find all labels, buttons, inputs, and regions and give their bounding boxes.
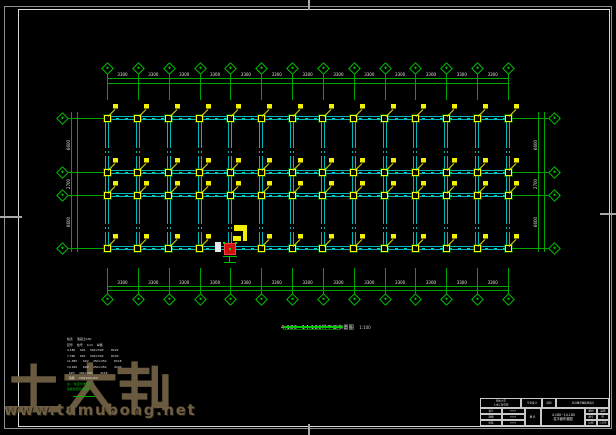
beam-dash-break bbox=[167, 222, 171, 232]
axis-bubble-left bbox=[56, 112, 69, 125]
bay-dimension: 3300 bbox=[395, 281, 405, 285]
column-tag bbox=[113, 234, 118, 239]
beam-dash-break bbox=[321, 146, 325, 156]
beam-dash-break bbox=[136, 222, 140, 232]
axis-bubble-bottom bbox=[317, 293, 330, 306]
bottom-dimension-line bbox=[107, 290, 508, 291]
axis-bubble-top bbox=[286, 62, 299, 75]
beam-dash-break bbox=[475, 222, 479, 232]
depth-dimension: 6600 bbox=[534, 140, 538, 150]
vertical-axis-line bbox=[169, 268, 170, 296]
title-block: 郑州大学土木工程学院毕业设计结构综合教学楼结构设计设计×××制图×××审核×××… bbox=[480, 398, 609, 426]
tb-project-name: 综合教学楼结构设计 bbox=[556, 398, 609, 408]
axis-bubble-right bbox=[548, 112, 561, 125]
note-row-green: 箍筋加密区详图集 bbox=[67, 387, 123, 393]
axis-bubble-bottom bbox=[348, 293, 361, 306]
top-dimension-line bbox=[107, 78, 508, 79]
beam-dash-break bbox=[228, 146, 232, 156]
column-tag bbox=[206, 234, 211, 239]
column-tag bbox=[267, 104, 272, 109]
column-tag bbox=[514, 181, 519, 186]
column-tag bbox=[452, 104, 457, 109]
tb-meta-value: 1:100 bbox=[597, 420, 609, 426]
right-dimension-line bbox=[544, 112, 545, 252]
axis-bubble-top bbox=[163, 62, 176, 75]
column-leader bbox=[509, 109, 517, 117]
column-tag bbox=[452, 158, 457, 163]
beam-dash-break bbox=[105, 146, 109, 156]
column-tag bbox=[514, 234, 519, 239]
beam-dash-break bbox=[198, 146, 202, 156]
column-tag bbox=[483, 181, 488, 186]
axis-bubble-top bbox=[225, 62, 238, 75]
column-tag bbox=[144, 158, 149, 163]
notes-underline bbox=[73, 396, 95, 397]
beam-dash-break bbox=[475, 146, 479, 156]
vertical-axis-line bbox=[200, 72, 201, 100]
axis-bubble-bottom bbox=[194, 293, 207, 306]
axis-bubble-bottom bbox=[471, 293, 484, 306]
bay-dimension: 3300 bbox=[364, 73, 374, 77]
column-tag bbox=[360, 234, 365, 239]
column-tag bbox=[298, 234, 303, 239]
tb-discipline: 结构 bbox=[542, 398, 556, 408]
axis-bubble-top bbox=[471, 62, 484, 75]
axis-bubble-top bbox=[101, 62, 114, 75]
vertical-axis-line bbox=[415, 72, 416, 100]
column-tag bbox=[329, 158, 334, 163]
column-tag bbox=[452, 234, 457, 239]
column-tag bbox=[175, 158, 180, 163]
axis-bubble-right bbox=[548, 189, 561, 202]
column-tag bbox=[113, 181, 118, 186]
bay-dimension: 3300 bbox=[303, 73, 313, 77]
column-tag bbox=[206, 104, 211, 109]
beam-dash-break bbox=[383, 146, 387, 156]
column-tag bbox=[267, 234, 272, 239]
selection-bracket bbox=[223, 256, 237, 257]
bay-dimension: 3300 bbox=[117, 281, 127, 285]
bay-dimension: 3300 bbox=[364, 281, 374, 285]
column-schedule-notes: 柱表混凝土C30层号柱号b×h纵筋4.180KZ1500×5008C227.78… bbox=[67, 337, 123, 393]
vertical-axis-line bbox=[107, 72, 108, 100]
column-tag bbox=[452, 181, 457, 186]
bay-dimension: 3300 bbox=[395, 73, 405, 77]
column-tag bbox=[391, 104, 396, 109]
depth-dimension: 6600 bbox=[67, 216, 71, 226]
column-tag bbox=[360, 181, 365, 186]
column-tag bbox=[206, 158, 211, 163]
vertical-axis-line bbox=[261, 72, 262, 100]
column-tag bbox=[175, 181, 180, 186]
beam-dash-break bbox=[167, 146, 171, 156]
tb-meta-label: 比例 bbox=[585, 420, 597, 426]
top-dimension-line bbox=[107, 83, 508, 84]
column-tag bbox=[360, 158, 365, 163]
beam-dash-break bbox=[506, 146, 510, 156]
beam-dash-break bbox=[290, 146, 294, 156]
axis-bubble-bottom bbox=[101, 293, 114, 306]
depth-dimension: 2700 bbox=[534, 178, 538, 188]
column-tag bbox=[267, 158, 272, 163]
column-tag bbox=[144, 181, 149, 186]
vertical-axis-line bbox=[230, 268, 231, 296]
bay-dimension: 3300 bbox=[457, 281, 467, 285]
bay-dimension: 3300 bbox=[488, 73, 498, 77]
bay-dimension: 3300 bbox=[426, 73, 436, 77]
beam-dash-break bbox=[259, 146, 263, 156]
tb-organization: 郑州大学土木工程学院 bbox=[480, 398, 521, 408]
column-tag bbox=[113, 104, 118, 109]
axis-bubble-top bbox=[410, 62, 423, 75]
bay-dimension: 3300 bbox=[333, 281, 343, 285]
bay-dimension: 3300 bbox=[241, 281, 251, 285]
vertical-axis-line bbox=[477, 268, 478, 296]
column-tag bbox=[421, 104, 426, 109]
beam-dash-break bbox=[444, 222, 448, 232]
beam-dash-break bbox=[290, 222, 294, 232]
column-tag bbox=[267, 181, 272, 186]
vertical-axis-line bbox=[292, 72, 293, 100]
bay-dimension: 3300 bbox=[148, 73, 158, 77]
vertical-axis-line bbox=[292, 268, 293, 296]
grip bbox=[223, 242, 225, 244]
axis-bubble-right bbox=[548, 242, 561, 255]
beam-dash-break bbox=[413, 222, 417, 232]
depth-dimension: 2700 bbox=[67, 178, 71, 188]
vertical-axis-line bbox=[230, 72, 231, 100]
bay-dimension: 3300 bbox=[210, 281, 220, 285]
beam-dash-break bbox=[352, 146, 356, 156]
column-tag bbox=[421, 158, 426, 163]
column-tag bbox=[421, 234, 426, 239]
beam-dash-break bbox=[259, 222, 263, 232]
beam-dash-break bbox=[228, 222, 232, 232]
selection-label bbox=[215, 242, 221, 252]
column-tag bbox=[421, 181, 426, 186]
bay-dimension: 3300 bbox=[117, 73, 127, 77]
selection-bracket bbox=[224, 262, 236, 263]
column-tag bbox=[514, 104, 519, 109]
beam-dash-break bbox=[198, 222, 202, 232]
tb-drawing-title: 4.180~14.180柱平面布置图 bbox=[541, 408, 585, 426]
bay-dimension: 3300 bbox=[179, 281, 189, 285]
axis-bubble-bottom bbox=[286, 293, 299, 306]
axis-bubble-bottom bbox=[255, 293, 268, 306]
axis-bubble-bottom bbox=[163, 293, 176, 306]
bay-dimension: 3300 bbox=[426, 281, 436, 285]
column-tag bbox=[206, 181, 211, 186]
left-dimension-line bbox=[71, 112, 72, 252]
axis-bubble-bottom bbox=[132, 293, 145, 306]
bay-dimension: 3300 bbox=[333, 73, 343, 77]
axis-bubble-top bbox=[502, 62, 515, 75]
axis-bubble-bottom bbox=[502, 293, 515, 306]
caption-underline bbox=[283, 326, 343, 328]
vertical-axis-line bbox=[385, 72, 386, 100]
column-tag bbox=[360, 104, 365, 109]
beam-dash-break bbox=[506, 222, 510, 232]
column-tag bbox=[329, 234, 334, 239]
bay-dimension: 3300 bbox=[488, 281, 498, 285]
axis-bubble-left bbox=[56, 166, 69, 179]
tb-project-type: 毕业设计 bbox=[521, 398, 542, 408]
beam-dash-break bbox=[383, 222, 387, 232]
column-tag bbox=[298, 158, 303, 163]
axis-bubble-bottom bbox=[410, 293, 423, 306]
column-tag bbox=[298, 104, 303, 109]
axis-bubble-top bbox=[255, 62, 268, 75]
column-tag bbox=[483, 158, 488, 163]
axis-bubble-bottom bbox=[440, 293, 453, 306]
horizontal-axis-line bbox=[508, 195, 550, 196]
column-tag bbox=[391, 181, 396, 186]
column-tag bbox=[236, 181, 241, 186]
caption-underline-thin bbox=[283, 329, 340, 330]
horizontal-axis-line bbox=[508, 118, 550, 119]
horizontal-axis-line bbox=[66, 248, 107, 249]
vertical-axis-line bbox=[138, 72, 139, 100]
tb-sign-label: 审核 bbox=[480, 420, 502, 426]
bay-dimension: 3300 bbox=[457, 73, 467, 77]
axis-bubble-left bbox=[56, 242, 69, 255]
bay-dimension: 3300 bbox=[241, 73, 251, 77]
column-tag bbox=[236, 158, 241, 163]
column-tag bbox=[329, 104, 334, 109]
tb-sign-name: ××× bbox=[502, 420, 525, 426]
depth-dimension: 6600 bbox=[534, 216, 538, 226]
vertical-axis-line bbox=[354, 72, 355, 100]
beam-dash-break bbox=[136, 146, 140, 156]
vertical-axis-line bbox=[323, 72, 324, 100]
bay-dimension: 3300 bbox=[272, 73, 282, 77]
tb-name-label: 图 名 bbox=[525, 408, 541, 426]
horizontal-axis-line bbox=[508, 172, 550, 173]
column-tag bbox=[329, 181, 334, 186]
beam-dash-break bbox=[321, 222, 325, 232]
axis-bubble-top bbox=[317, 62, 330, 75]
column-tag bbox=[298, 181, 303, 186]
vertical-axis-line bbox=[508, 72, 509, 100]
left-dimension-line bbox=[77, 112, 78, 252]
vertical-axis-line bbox=[415, 268, 416, 296]
bay-dimension: 3300 bbox=[148, 281, 158, 285]
axis-bubble-top bbox=[348, 62, 361, 75]
cursor-arrow bbox=[233, 236, 241, 241]
column-tag bbox=[236, 104, 241, 109]
vertical-axis-line bbox=[446, 72, 447, 100]
axis-bubble-top bbox=[440, 62, 453, 75]
depth-dimension: 6600 bbox=[67, 140, 71, 150]
column-tag bbox=[113, 158, 118, 163]
beam-dash-break bbox=[105, 222, 109, 232]
axis-bubble-top bbox=[379, 62, 392, 75]
vertical-axis-line bbox=[477, 72, 478, 100]
horizontal-axis-line bbox=[66, 118, 107, 119]
column-tag bbox=[391, 234, 396, 239]
horizontal-axis-line bbox=[508, 248, 550, 249]
horizontal-axis-line bbox=[66, 172, 107, 173]
column-tag bbox=[514, 158, 519, 163]
grip bbox=[229, 248, 231, 250]
axis-bubble-left bbox=[56, 189, 69, 202]
column-tag bbox=[175, 104, 180, 109]
column-tag bbox=[144, 234, 149, 239]
axis-bubble-right bbox=[548, 166, 561, 179]
beam-dash-break bbox=[352, 222, 356, 232]
vertical-axis-line bbox=[446, 268, 447, 296]
bay-dimension: 3300 bbox=[210, 73, 220, 77]
cursor-arrow bbox=[234, 225, 246, 231]
axis-bubble-top bbox=[132, 62, 145, 75]
vertical-axis-line bbox=[261, 268, 262, 296]
cad-canvas[interactable]: www.tumubong.net 33003300330033003300330… bbox=[0, 0, 616, 435]
axis-bubble-top bbox=[194, 62, 207, 75]
column-tag bbox=[483, 104, 488, 109]
column-tag bbox=[144, 104, 149, 109]
bay-dimension: 3300 bbox=[303, 281, 313, 285]
bay-dimension: 3300 bbox=[179, 73, 189, 77]
axis-bubble-bottom bbox=[225, 293, 238, 306]
right-dimension-line bbox=[538, 112, 539, 252]
axis-bubble-bottom bbox=[379, 293, 392, 306]
drawing-caption: 4.180~14.180柱平面布置图1:100 bbox=[281, 314, 371, 333]
caption-scale: 1:100 bbox=[359, 325, 371, 330]
horizontal-axis-line bbox=[66, 195, 107, 196]
beam-dash-break bbox=[444, 146, 448, 156]
column-tag bbox=[391, 158, 396, 163]
grip bbox=[235, 242, 237, 244]
column-tag bbox=[175, 234, 180, 239]
bottom-dimension-line bbox=[107, 286, 508, 287]
bay-dimension: 3300 bbox=[272, 281, 282, 285]
column-tag bbox=[483, 234, 488, 239]
vertical-axis-line bbox=[169, 72, 170, 100]
beam-dash-break bbox=[413, 146, 417, 156]
